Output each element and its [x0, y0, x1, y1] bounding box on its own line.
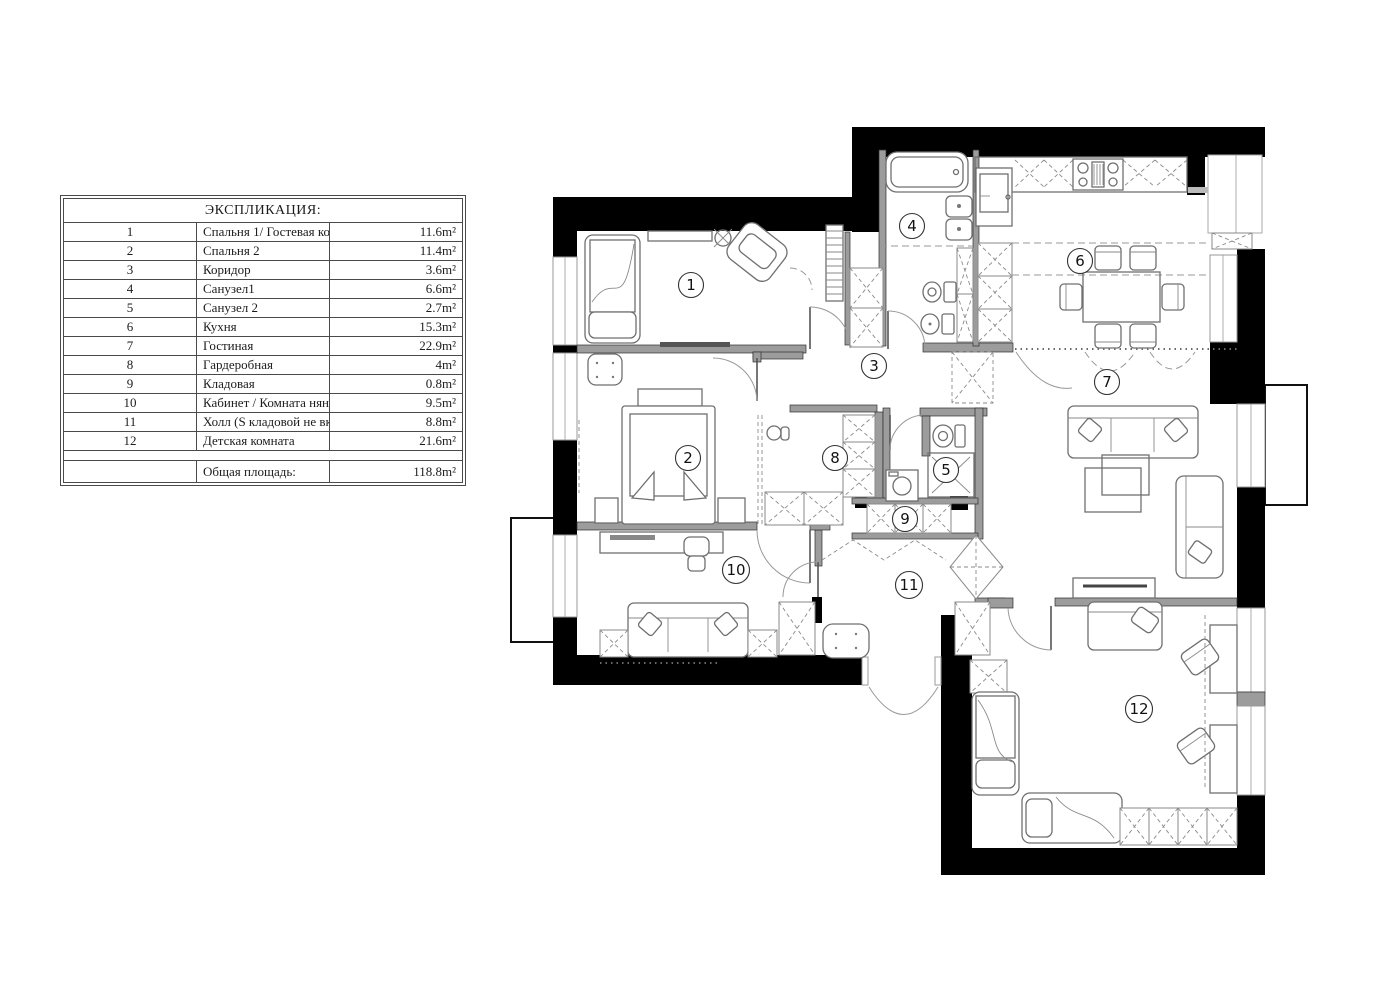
toilet-icon: [933, 425, 965, 447]
curtain-arc: [790, 268, 812, 290]
svg-text:6: 6: [1075, 252, 1085, 270]
folding-doors: [822, 540, 946, 560]
room-label-8: 8: [823, 446, 848, 471]
svg-text:9: 9: [900, 510, 910, 528]
room-label-3: 3: [862, 354, 887, 379]
curtain-arc: [1150, 352, 1195, 369]
room-label-9: 9: [893, 507, 918, 532]
door-arc: [888, 311, 925, 348]
room-label-4: 4: [900, 214, 925, 239]
room-7-living: [1068, 406, 1223, 598]
nightstand-icon: [595, 498, 618, 523]
shaft: [1208, 155, 1262, 233]
svg-text:5: 5: [941, 461, 951, 479]
room-11-hall: [779, 535, 1003, 658]
door-arc: [810, 307, 850, 348]
bed-icon: [972, 692, 1019, 795]
room-2-bedroom: [579, 354, 745, 524]
pouf-icon: [588, 354, 622, 385]
loveseat-icon: [1176, 476, 1223, 578]
room-12-children: [970, 602, 1237, 845]
door-arc: [757, 530, 810, 583]
room-4-bathroom: [886, 152, 973, 342]
door-arc: [890, 415, 925, 450]
svg-text:8: 8: [830, 449, 840, 467]
svg-text:7: 7: [1102, 373, 1112, 391]
room-label-12: 12: [1126, 696, 1153, 723]
shelf-icon: [648, 231, 712, 241]
door-arc: [1008, 608, 1051, 650]
room-label-11: 11: [896, 572, 923, 599]
room-10-study: [600, 532, 777, 663]
bathtub-icon: [886, 152, 968, 192]
radiator-icon: [826, 225, 843, 301]
svg-text:4: 4: [907, 217, 917, 235]
wall-divider: [1237, 692, 1265, 706]
room-label-5: 5: [934, 458, 959, 483]
person-icon: [767, 426, 781, 440]
door-arc: [1016, 352, 1072, 388]
bed-icon: [1022, 793, 1122, 843]
sofa-icon: [1068, 406, 1198, 458]
kitchen-sink-icon: [976, 168, 1012, 226]
entrance-door-arc: [869, 687, 938, 715]
bed-icon: [1088, 602, 1162, 650]
bidet-icon: [921, 314, 954, 334]
coffee-table-icon: [1085, 468, 1141, 512]
toilet-icon: [923, 282, 956, 302]
headboard-icon: [638, 389, 702, 406]
room-label-6: 6: [1068, 249, 1093, 274]
svg-text:3: 3: [869, 357, 879, 375]
svg-text:1: 1: [686, 276, 696, 294]
room-label-7: 7: [1095, 370, 1120, 395]
niche-dashed: [952, 352, 993, 403]
stove-icon: [1073, 159, 1123, 190]
svg-text:11: 11: [899, 576, 918, 594]
balcony-right: [1265, 385, 1307, 505]
desk-chair-icon: [1179, 637, 1220, 677]
door-arc: [783, 562, 818, 597]
washing-machine-icon: [886, 470, 918, 501]
room-label-2: 2: [676, 446, 701, 471]
nightstand-icon: [718, 498, 745, 523]
desk-icon: [1210, 725, 1237, 793]
floor-plan: 1 2 3 4 5 6 7: [0, 0, 1376, 1000]
svg-text:2: 2: [683, 449, 693, 467]
curtain-arc: [1085, 352, 1135, 371]
double-bed-icon: [622, 406, 715, 524]
floor-plan-sheet: ЭКСПЛИКАЦИЯ: 1 Спальня 1/ Гостевая комна…: [0, 0, 1376, 1000]
desk-chair-icon: [684, 537, 709, 571]
room-label-1: 1: [679, 273, 704, 298]
room-label-10: 10: [723, 557, 750, 584]
door-arc: [713, 358, 757, 401]
hall-closet: [850, 268, 883, 347]
coffee-table-icon: [1102, 455, 1149, 495]
room-1-bedroom: [585, 219, 843, 343]
sill: [1188, 187, 1208, 193]
svg-text:10: 10: [726, 561, 745, 579]
room-8-wardrobe: [758, 415, 875, 525]
sofa-icon: [628, 603, 748, 657]
balcony-left: [511, 518, 557, 642]
pillow-icon: [589, 312, 636, 338]
svg-text:12: 12: [1129, 700, 1148, 718]
ottoman-icon: [823, 624, 869, 658]
tv-console-icon: [1073, 578, 1155, 598]
